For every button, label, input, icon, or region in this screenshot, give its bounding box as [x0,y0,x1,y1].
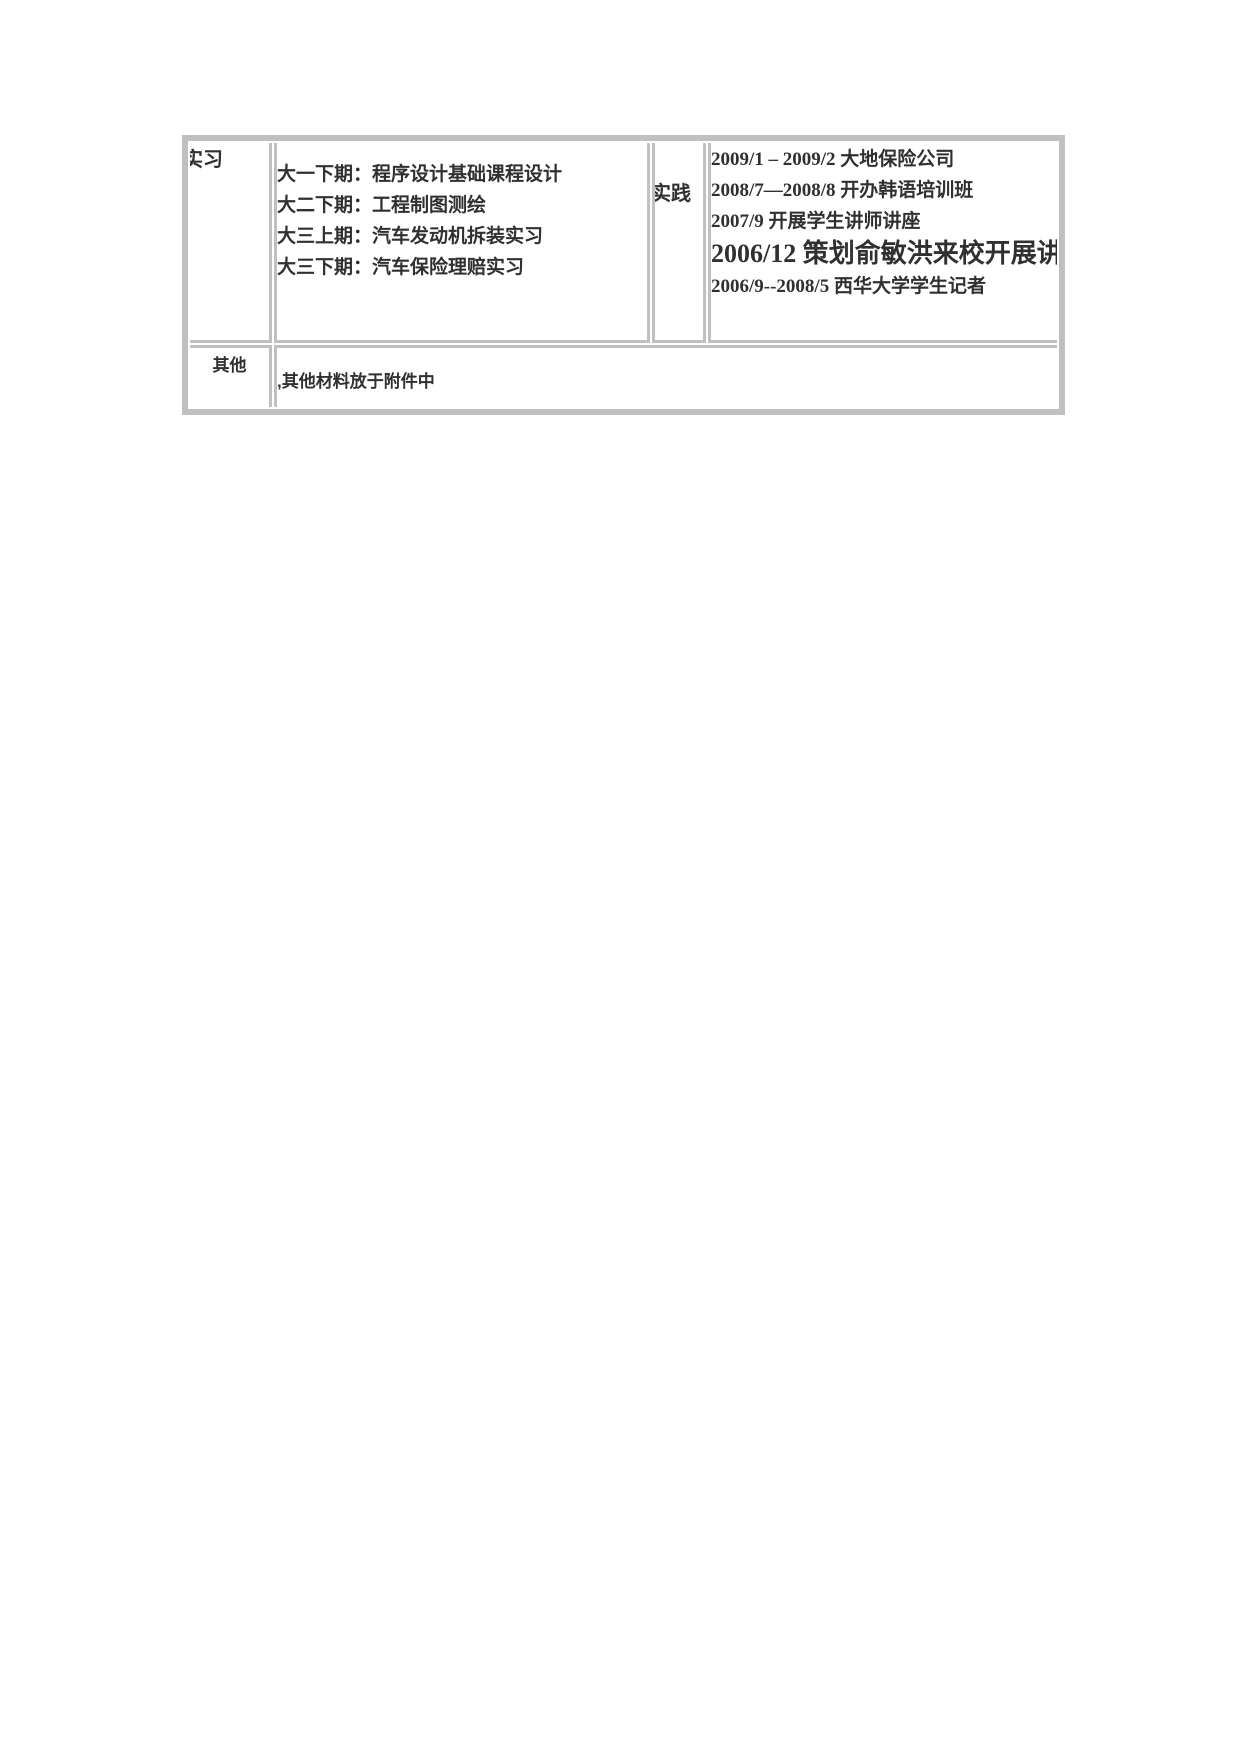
practice-item-1: 2009/1 – 2009/2 大地保险公司 [711,144,1057,175]
practice-content-cell: 2009/1 – 2009/2 大地保险公司 2008/7—2008/8 开办韩… [708,143,1057,343]
practice-item-2: 2008/7—2008/8 开办韩语培训班 [711,175,1057,206]
internship-item-2: 大二下期：工程制图测绘 [277,190,647,221]
practice-item-3: 2007/9 开展学生讲师讲座 [711,206,1057,237]
other-label: 其他 [213,356,247,375]
internship-label-cell: 实习 [190,143,272,343]
other-content-cell: ,其他材料放于附件中 [274,345,1057,407]
practice-label-cell: 实践 [652,143,706,343]
practice-item-4: 2006/12 策划俞敏洪来校开展讲座 [711,237,1057,271]
resume-table-grid: 实习 大一下期：程序设计基础课程设计 大二下期：工程制图测绘 大三上期：汽车发动… [188,141,1059,409]
internship-item-1: 大一下期：程序设计基础课程设计 [277,159,647,190]
table-row-internship-practice: 实习 大一下期：程序设计基础课程设计 大二下期：工程制图测绘 大三上期：汽车发动… [190,143,1057,343]
internship-content-cell: 大一下期：程序设计基础课程设计 大二下期：工程制图测绘 大三上期：汽车发动机拆装… [274,143,650,343]
internship-label: 实习 [190,149,223,171]
other-content: ,其他材料放于附件中 [277,372,435,391]
other-label-cell: 其他 [190,345,272,407]
practice-label: 实践 [652,183,691,205]
practice-item-5: 2006/9--2008/5 西华大学学生记者 [711,271,1057,302]
resume-table: 实习 大一下期：程序设计基础课程设计 大二下期：工程制图测绘 大三上期：汽车发动… [182,135,1065,415]
document-page: 实习 大一下期：程序设计基础课程设计 大二下期：工程制图测绘 大三上期：汽车发动… [0,0,1240,1754]
internship-item-4: 大三下期：汽车保险理赔实习 [277,252,647,283]
internship-item-3: 大三上期：汽车发动机拆装实习 [277,221,647,252]
table-row-other: 其他 ,其他材料放于附件中 [190,345,1057,407]
